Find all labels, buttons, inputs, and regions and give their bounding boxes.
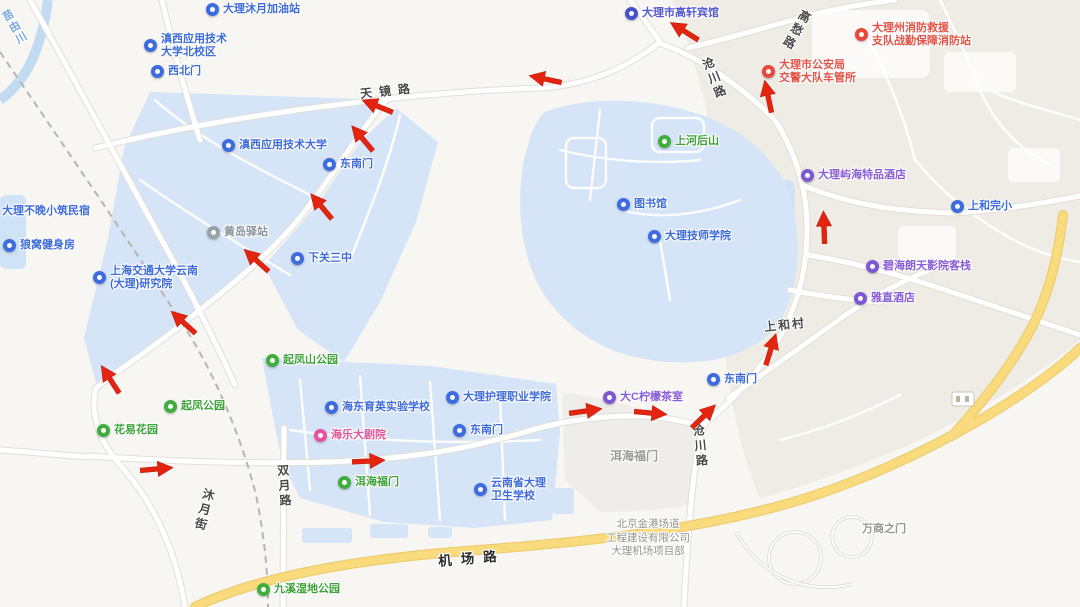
poi-label-line: 上海交通大学云南 xyxy=(110,265,198,278)
pin-glyph xyxy=(805,173,810,178)
poi-label-line: 九溪湿地公园 xyxy=(274,583,340,596)
poi-label-line: 雅直酒店 xyxy=(871,292,915,305)
poi-label-line: 花易花园 xyxy=(114,424,158,437)
hotel-icon xyxy=(854,292,867,305)
poi-label: 滇西应用技术大学 xyxy=(239,139,327,152)
school-pin[interactable]: 上和完小 xyxy=(951,200,1012,213)
library-icon xyxy=(617,198,630,211)
poi-label-line: 黄岛驿站 xyxy=(224,226,268,239)
pin-glyph xyxy=(97,275,102,280)
poi-label: 大理市高轩宾馆 xyxy=(642,7,719,20)
poi-label: 上河后山 xyxy=(675,135,719,148)
pin-glyph xyxy=(101,428,106,433)
library-pin[interactable]: 图书馆 xyxy=(617,198,667,211)
pin-glyph xyxy=(329,405,334,410)
school-icon xyxy=(951,200,964,213)
poi-label-line: 云南省大理 xyxy=(491,477,546,490)
park-icon xyxy=(338,476,351,489)
park-pin[interactable]: 起凤公园 xyxy=(164,400,225,413)
pin-glyph xyxy=(295,256,300,261)
pin-glyph xyxy=(955,204,960,209)
gas-station-icon xyxy=(206,3,219,16)
poi-label-line: 碧海朗天影院客栈 xyxy=(883,260,971,273)
pin-glyph xyxy=(652,234,657,239)
theater-pin[interactable]: 海乐大剧院 xyxy=(314,429,386,442)
poi-label: 花易花园 xyxy=(114,424,158,437)
company-label-line: 大理机场项目部 xyxy=(606,545,690,559)
pin-glyph xyxy=(270,358,275,363)
poi-label-line: 图书馆 xyxy=(634,198,667,211)
pin-glyph xyxy=(318,433,323,438)
poi-label: 雅直酒店 xyxy=(871,292,915,305)
school-pin[interactable]: 下关三中 xyxy=(291,252,352,265)
pin-glyph xyxy=(450,395,455,400)
area-label: 万商之门 xyxy=(862,520,906,536)
map-canvas[interactable]: 天镜路沧川路沧川路高愁路双月路沐月街苗由川机场路上和村洱海福门北京金港场道工程建… xyxy=(0,0,1080,607)
poi-label-line: 海乐大剧院 xyxy=(331,429,386,442)
poi-label: 海东育英实验学校 xyxy=(342,401,430,414)
school-icon xyxy=(474,483,487,496)
poi-label: 下关三中 xyxy=(308,252,352,265)
gate-pin[interactable]: 东南门 xyxy=(453,424,503,437)
pin-glyph xyxy=(859,32,864,37)
park-pin[interactable]: 花易花园 xyxy=(97,424,158,437)
park-icon xyxy=(164,400,177,413)
company-label: 北京金港场道工程建设有限公司大理机场项目部 xyxy=(606,518,690,559)
poi-label-line: 东南门 xyxy=(340,158,373,171)
gym-pin[interactable]: 狼窝健身房 xyxy=(3,239,75,252)
poi-label: 大理屿海特品酒店 xyxy=(818,169,906,182)
poi-label: 云南省大理卫生学校 xyxy=(491,477,546,503)
poi-label-line: 海东育英实验学校 xyxy=(342,401,430,414)
school-pin[interactable]: 云南省大理卫生学校 xyxy=(474,477,546,503)
park-icon xyxy=(266,354,279,367)
company-label-line: 北京金港场道 xyxy=(606,518,690,532)
park-pin[interactable]: 起凤山公园 xyxy=(266,354,338,367)
poi-label-line: 洱海福门 xyxy=(355,476,399,489)
company-label-line: 工程建设有限公司 xyxy=(606,532,690,546)
pin-glyph xyxy=(327,162,332,167)
campus-pin[interactable]: 滇西应用技术大学北校区 xyxy=(144,33,227,59)
gas-station-pin[interactable]: 大理沐月加油站 xyxy=(206,3,300,16)
mountain-pin[interactable]: 上河后山 xyxy=(658,135,719,148)
poi-label-line: 上和完小 xyxy=(968,200,1012,213)
poi-label-line: 大理沐月加油站 xyxy=(223,3,300,16)
poi-label-line: 大理市公安局 xyxy=(779,59,856,72)
fire-station-icon xyxy=(855,28,868,41)
mountain-icon xyxy=(658,135,671,148)
pin-glyph xyxy=(870,264,875,269)
poi-label: 东南门 xyxy=(340,158,373,171)
poi-label: 起凤山公园 xyxy=(283,354,338,367)
gate-pin[interactable]: 西北门 xyxy=(151,65,201,78)
gate-icon xyxy=(453,424,466,437)
pin-glyph xyxy=(457,428,462,433)
road-label: 双月路 xyxy=(274,463,294,509)
school-icon xyxy=(222,139,235,152)
poi-label-line: 交警大队车管所 xyxy=(779,72,856,85)
fire-station-pin[interactable]: 大理州消防救援支队战勤保障消防站 xyxy=(855,22,971,48)
gate-icon xyxy=(151,65,164,78)
poi-label-line: 大学北校区 xyxy=(161,46,227,59)
university-pin[interactable]: 滇西应用技术大学 xyxy=(222,139,327,152)
gate-icon xyxy=(707,373,720,386)
poi-label: 黄岛驿站 xyxy=(224,226,268,239)
route-direction-arrow xyxy=(815,210,833,245)
poi-label-line: 大理屿海特品酒店 xyxy=(818,169,906,182)
poi-label-line: 滇西应用技术 xyxy=(161,33,227,46)
pin-glyph xyxy=(155,69,160,74)
poi-label-line: 起凤山公园 xyxy=(283,354,338,367)
research-institute-pin[interactable]: 上海交通大学云南(大理)研究院 xyxy=(93,265,198,291)
pin-glyph xyxy=(226,143,231,148)
school-icon xyxy=(325,401,338,414)
school-icon xyxy=(648,230,661,243)
park-icon xyxy=(97,424,110,437)
poi-label: 滇西应用技术大学北校区 xyxy=(161,33,227,59)
poi-label: 海乐大剧院 xyxy=(331,429,386,442)
poi-label-line: 东南门 xyxy=(724,373,757,386)
gate-pin[interactable]: 东南门 xyxy=(323,158,373,171)
pin-glyph xyxy=(7,243,12,248)
police-pin[interactable]: 大理市公安局交警大队车管所 xyxy=(762,59,856,85)
poi-label: 大理不晚小筑民宿 xyxy=(2,205,90,218)
poi-label-line: 支队战勤保障消防站 xyxy=(872,35,971,48)
pin-glyph xyxy=(662,139,667,144)
poi-label: 九溪湿地公园 xyxy=(274,583,340,596)
poi-label-line: (大理)研究院 xyxy=(110,278,198,291)
pin-glyph xyxy=(210,7,215,12)
park-pin[interactable]: 洱海福门 xyxy=(338,476,399,489)
poi-label-line: 西北门 xyxy=(168,65,201,78)
pin-glyph xyxy=(711,377,716,382)
school-icon xyxy=(291,252,304,265)
route-direction-arrow xyxy=(352,452,387,471)
college-pin[interactable]: 大理技师学院 xyxy=(648,230,731,243)
hotel-icon xyxy=(866,260,879,273)
college-pin[interactable]: 大理护理职业学院 xyxy=(446,391,551,404)
poi-label: 大理市公安局交警大队车管所 xyxy=(779,59,856,85)
poi-label: 上海交通大学云南(大理)研究院 xyxy=(110,265,198,291)
poi-label: 西北门 xyxy=(168,65,201,78)
pin-glyph xyxy=(342,480,347,485)
poi-label-line: 大理市高轩宾馆 xyxy=(642,7,719,20)
pin-glyph xyxy=(478,487,483,492)
poi-label: 东南门 xyxy=(470,424,503,437)
poi-label-line: 大理不晚小筑民宿 xyxy=(2,205,90,218)
route-direction-arrow xyxy=(139,459,174,479)
poi-label: 上和完小 xyxy=(968,200,1012,213)
homestay-label[interactable]: 大理不晚小筑民宿 xyxy=(2,205,90,218)
park-pin[interactable]: 九溪湿地公园 xyxy=(257,583,340,596)
area-label: 洱海福门 xyxy=(610,447,658,464)
poi-label: 大理沐月加油站 xyxy=(223,3,300,16)
poi-label: 大理州消防救援支队战勤保障消防站 xyxy=(872,22,971,48)
pin-glyph xyxy=(766,69,771,74)
poi-label-line: 东南门 xyxy=(470,424,503,437)
pin-glyph xyxy=(168,404,173,409)
poi-label-line: 上河后山 xyxy=(675,135,719,148)
poi-label-line: 大理技师学院 xyxy=(665,230,731,243)
hotel-pin[interactable]: 大理市高轩宾馆 xyxy=(625,7,719,20)
theater-icon xyxy=(314,429,327,442)
poi-label-line: 卫生学校 xyxy=(491,490,546,503)
pin-glyph xyxy=(858,296,863,301)
poi-label: 大理护理职业学院 xyxy=(463,391,551,404)
pin-glyph xyxy=(211,230,216,235)
hotel-pin[interactable]: 大理屿海特品酒店 xyxy=(801,169,906,182)
poi-label-line: 大理州消防救援 xyxy=(872,22,971,35)
inn-pin[interactable]: 碧海朗天影院客栈 xyxy=(866,260,971,273)
cafe-icon xyxy=(603,391,616,404)
school-pin[interactable]: 海东育英实验学校 xyxy=(325,401,430,414)
hotel-icon xyxy=(801,169,814,182)
hotel-icon xyxy=(625,7,638,20)
poi-label: 起凤公园 xyxy=(181,400,225,413)
pin-glyph xyxy=(629,11,634,16)
transit-station-icon xyxy=(207,226,220,239)
gate-pin[interactable]: 东南门 xyxy=(707,373,757,386)
poi-label-line: 狼窝健身房 xyxy=(20,239,75,252)
pin-glyph xyxy=(148,43,153,48)
poi-label: 碧海朗天影院客栈 xyxy=(883,260,971,273)
map-base-svg xyxy=(0,0,1080,607)
hotel-pin[interactable]: 雅直酒店 xyxy=(854,292,915,305)
poi-label-line: 起凤公园 xyxy=(181,400,225,413)
poi-label: 大理技师学院 xyxy=(665,230,731,243)
gym-icon xyxy=(3,239,16,252)
poi-label-line: 大C柠檬茶室 xyxy=(620,391,683,404)
park-icon xyxy=(257,583,270,596)
school-icon xyxy=(446,391,459,404)
school-icon xyxy=(144,39,157,52)
pin-glyph xyxy=(607,395,612,400)
poi-label: 图书馆 xyxy=(634,198,667,211)
pin-glyph xyxy=(621,202,626,207)
school-icon xyxy=(93,271,106,284)
poi-label-line: 下关三中 xyxy=(308,252,352,265)
police-icon xyxy=(762,65,775,78)
poi-label-line: 大理护理职业学院 xyxy=(463,391,551,404)
poi-label: 狼窝健身房 xyxy=(20,239,75,252)
station-pin[interactable]: 黄岛驿站 xyxy=(207,226,268,239)
tea-shop-pin[interactable]: 大C柠檬茶室 xyxy=(603,391,683,404)
poi-label: 东南门 xyxy=(724,373,757,386)
pin-glyph xyxy=(261,587,266,592)
poi-label-line: 滇西应用技术大学 xyxy=(239,139,327,152)
poi-label: 洱海福门 xyxy=(355,476,399,489)
gate-icon xyxy=(323,158,336,171)
poi-label: 大C柠檬茶室 xyxy=(620,391,683,404)
toll-gate-icon xyxy=(952,392,974,406)
route-direction-arrow xyxy=(633,403,668,423)
